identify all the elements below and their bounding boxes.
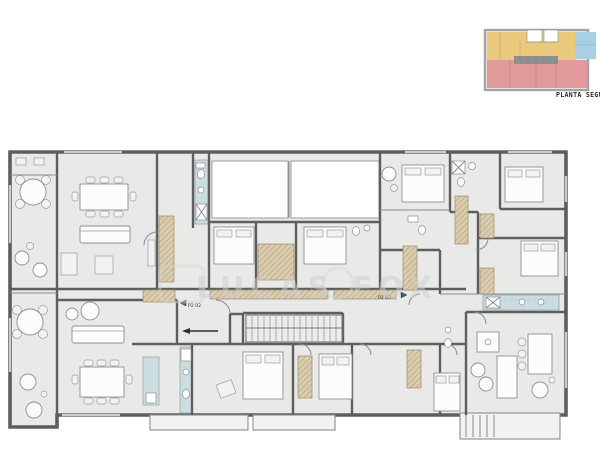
plan-title: PLANTA SEGUNDA [556, 91, 600, 99]
bedroom-bottom-3 [434, 373, 460, 411]
lounge-chair [479, 377, 493, 391]
balcony [150, 415, 248, 430]
lounge-chair [471, 363, 485, 377]
bedroom-top-2 [304, 227, 346, 264]
sink [469, 163, 476, 170]
watermark-text: LUCAS FOX [196, 271, 438, 306]
sink [408, 216, 418, 222]
sofa [80, 226, 130, 243]
bedroom-right-2 [505, 167, 543, 202]
bedroom-bottom-2 [319, 354, 352, 399]
dining-table [80, 184, 128, 210]
closet [298, 356, 312, 398]
armchair [382, 167, 396, 181]
light-well [291, 161, 379, 218]
key-light-well [527, 30, 542, 42]
toilet [445, 339, 452, 348]
terrace-bottom-right [460, 413, 560, 439]
sink [445, 327, 451, 333]
cabinet [61, 253, 77, 275]
cabinet [497, 356, 517, 398]
dining-table [528, 334, 552, 374]
sofa [72, 326, 124, 343]
toilet [458, 178, 465, 187]
toilet [419, 226, 426, 235]
bedroom-right-3 [521, 241, 558, 276]
side-table [95, 256, 113, 274]
closet [480, 268, 494, 294]
floor-plan-drawing: P2 02 P2 03 LUCAS FOX PLANTA SEGUNDA [0, 0, 600, 450]
closet [407, 350, 421, 388]
sink [364, 225, 370, 231]
sink [198, 187, 204, 193]
toilet [353, 227, 360, 236]
sink [183, 369, 189, 375]
key-zone-blue [575, 32, 596, 59]
toilet [198, 170, 205, 179]
toilet [183, 390, 190, 399]
staircase [246, 315, 342, 342]
sink [519, 299, 525, 305]
closet [480, 214, 494, 238]
dining-table [80, 367, 124, 397]
sink [538, 299, 544, 305]
bedroom-top-1 [214, 227, 254, 264]
closet [455, 196, 468, 244]
key-plan [485, 30, 596, 90]
armchair [532, 382, 548, 398]
key-light-well [544, 30, 558, 42]
tv-unit [148, 240, 155, 266]
balcony [253, 415, 335, 430]
watermark: LUCAS FOX [160, 266, 438, 306]
key-zone-red [487, 60, 587, 88]
light-well [212, 161, 288, 218]
